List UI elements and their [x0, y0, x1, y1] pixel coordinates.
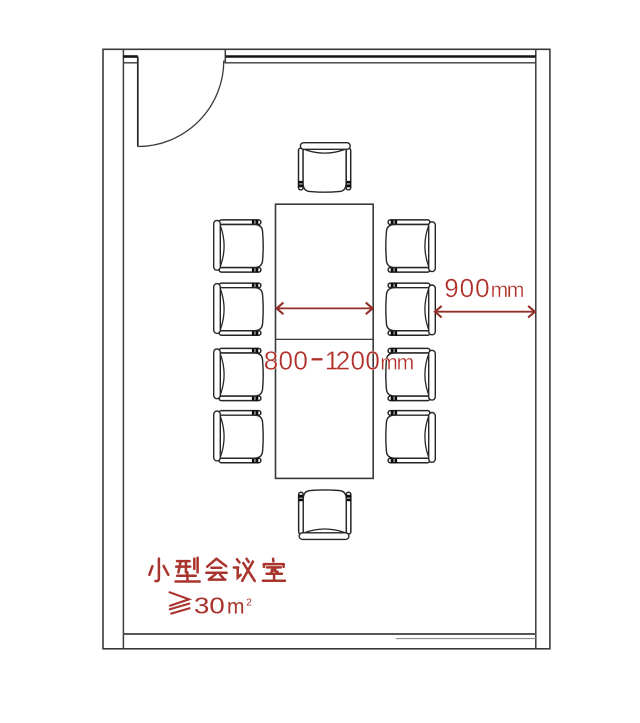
svg-text:30: 30	[194, 594, 225, 619]
svg-text:m: m	[227, 596, 245, 619]
svg-text:800: 800	[264, 346, 309, 376]
svg-text:2: 2	[246, 598, 252, 609]
